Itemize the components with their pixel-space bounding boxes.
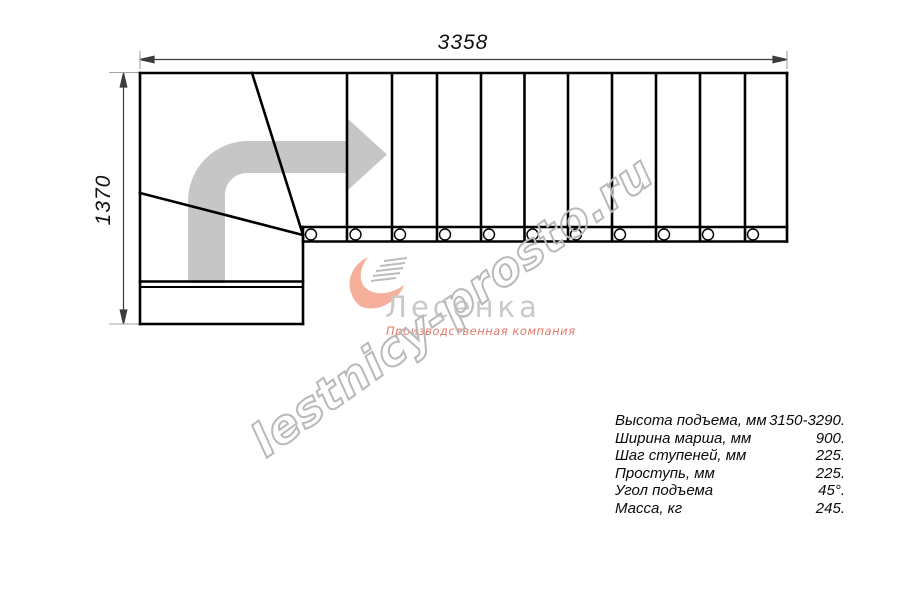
spec-value: 225.	[816, 447, 845, 465]
spec-row-height: Высота подъема, мм 3150-3290.	[615, 412, 845, 430]
dimension-height-label: 1370	[92, 175, 116, 226]
spec-value: 900.	[816, 430, 845, 448]
spec-row-angle: Угол подъема 45°.	[615, 482, 845, 500]
spec-label: Шаг ступеней, мм	[615, 447, 746, 465]
spec-row-march-width: Ширина марша, мм 900.	[615, 430, 845, 448]
blueprint-page: 3358 1370 Лесенка Производственная компа…	[0, 0, 900, 600]
spec-value: 3150-3290.	[769, 412, 845, 430]
dimension-width-label: 3358	[438, 31, 489, 55]
spec-row-tread: Проступь, мм 225.	[615, 465, 845, 483]
logo-stair-stripes	[371, 258, 407, 281]
specs-table: Высота подъема, мм 3150-3290. Ширина мар…	[615, 412, 845, 518]
spec-label: Высота подъема, мм	[615, 412, 767, 430]
spec-label: Угол подъема	[615, 482, 713, 500]
spec-row-mass: Масса, кг 245.	[615, 500, 845, 518]
spec-row-step-pitch: Шаг ступеней, мм 225.	[615, 447, 845, 465]
spec-value: 245.	[816, 500, 845, 518]
spec-label: Проступь, мм	[615, 465, 715, 483]
spec-value: 45°.	[818, 482, 845, 500]
spec-value: 225.	[816, 465, 845, 483]
spec-label: Масса, кг	[615, 500, 682, 518]
spec-label: Ширина марша, мм	[615, 430, 751, 448]
